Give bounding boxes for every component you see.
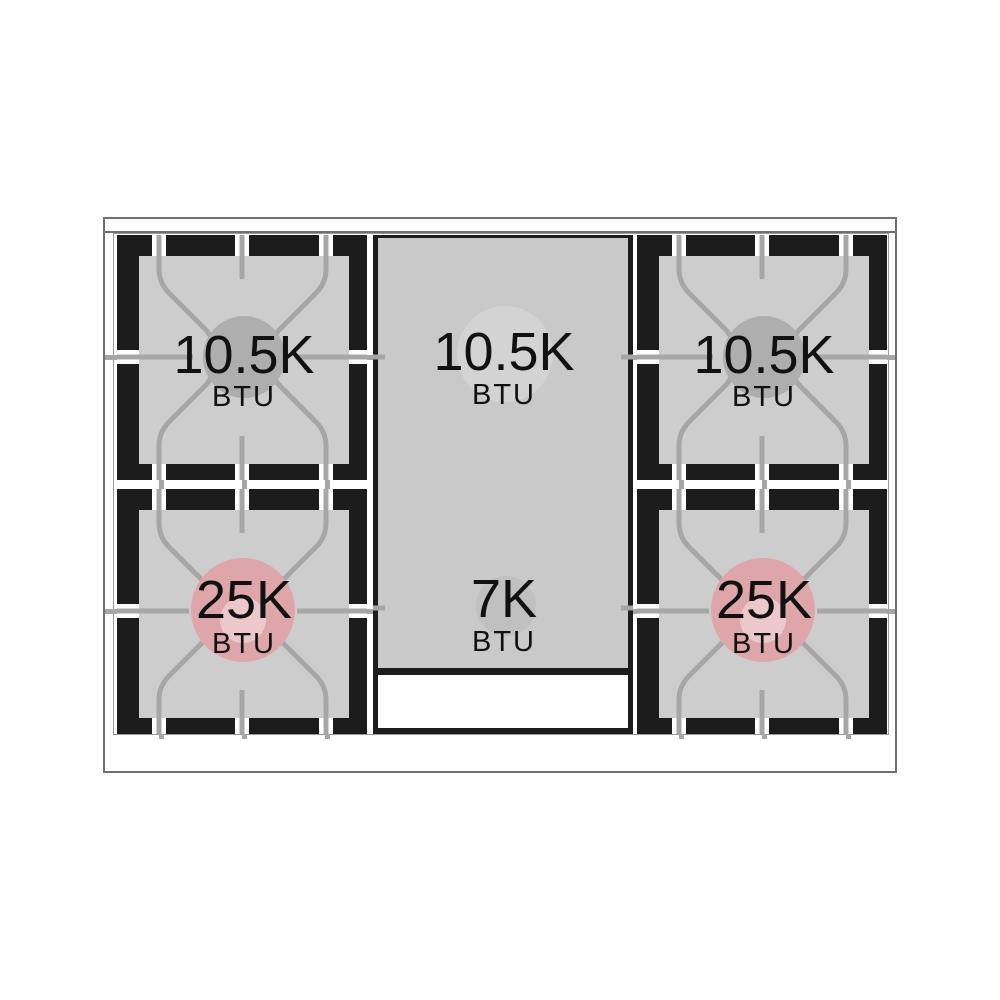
grate-stub <box>762 480 767 489</box>
back-trim-strip <box>105 219 895 233</box>
grate-stub <box>325 480 330 489</box>
btu-unit-label: BTU <box>212 381 276 413</box>
grate-stub <box>325 734 330 739</box>
grate-stub <box>762 734 767 739</box>
grate-stub <box>846 734 851 739</box>
grate-line-segment <box>887 355 895 360</box>
grate-line-segment <box>887 609 895 614</box>
btu-value-label: 25K <box>196 570 292 630</box>
burner-bottom-right: 25K BTU <box>637 489 887 734</box>
grate-line-segment <box>105 355 117 360</box>
btu-value-label: 7K <box>471 569 537 629</box>
grate-stub <box>242 734 247 739</box>
grate-stub <box>679 734 684 739</box>
column-front-panel <box>378 675 628 728</box>
burner-bottom-left: 25K BTU <box>117 489 367 734</box>
btu-unit-label: BTU <box>732 628 796 660</box>
btu-unit-label: BTU <box>472 379 536 411</box>
btu-value-label: 25K <box>716 570 812 630</box>
center-burner-column: 10.5K BTU 7K BTU <box>373 235 633 734</box>
grate-stub <box>159 480 164 489</box>
cooktop-diagram: 10.5K BTU 10.5K BTU <box>0 0 1000 1000</box>
grate-stub <box>159 734 164 739</box>
btu-value-label: 10.5K <box>693 325 834 385</box>
btu-unit-label: BTU <box>732 381 796 413</box>
btu-value-label: 10.5K <box>433 322 574 382</box>
btu-unit-label: BTU <box>212 628 276 660</box>
grate-stub <box>846 480 851 489</box>
btu-unit-label: BTU <box>472 626 536 658</box>
range-top-outline: 10.5K BTU 10.5K BTU <box>103 217 897 773</box>
burner-top-right: 10.5K BTU <box>637 235 887 480</box>
grate-line-segment <box>105 609 117 614</box>
grate-stub <box>679 480 684 489</box>
burner-top-left: 10.5K BTU <box>117 235 367 480</box>
btu-value-label: 10.5K <box>173 325 314 385</box>
grate-stub <box>242 480 247 489</box>
